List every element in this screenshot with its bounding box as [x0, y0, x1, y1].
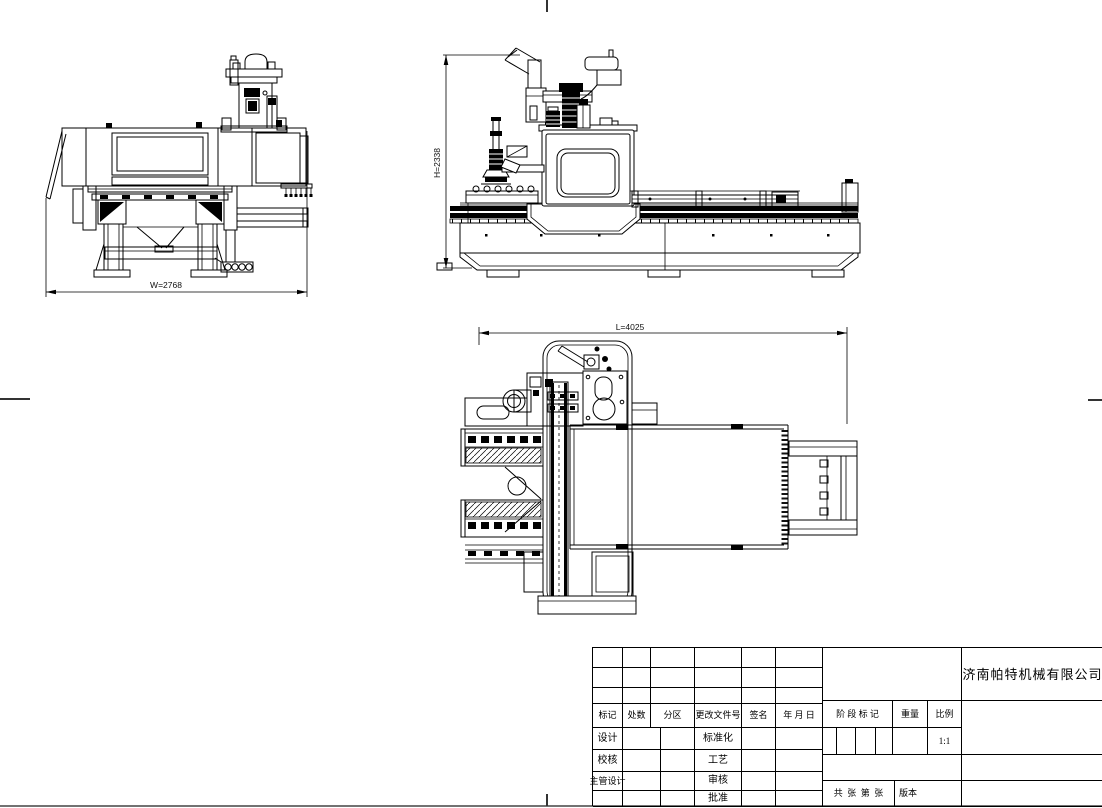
weight-value — [893, 728, 928, 755]
revision-cell — [695, 688, 742, 704]
blank-cell — [661, 750, 695, 772]
row-standardization: 标准化 — [695, 728, 742, 750]
blank-cell — [742, 772, 776, 791]
blank-cell — [661, 728, 695, 750]
blank-cell — [962, 781, 1102, 807]
revision-cell — [623, 668, 651, 688]
front-width-dim: W=2768 — [150, 280, 182, 290]
revision-cell — [651, 688, 695, 704]
blank-cell — [776, 772, 823, 791]
blank-cell — [661, 791, 695, 807]
company-name: 济南帕特机械有限公司 — [962, 648, 1102, 701]
revision-cell — [776, 648, 823, 668]
top-view: L=4025 — [461, 322, 857, 614]
side-view: H=2338 — [432, 48, 860, 277]
col-mark: 标记 — [593, 704, 623, 728]
blank-cell — [623, 772, 661, 791]
blank-cell — [623, 791, 661, 807]
blank-cell — [742, 750, 776, 772]
revision-cell — [695, 668, 742, 688]
blank-cell — [742, 728, 776, 750]
blank-cell — [776, 728, 823, 750]
side-height-dim: H=2338 — [432, 148, 442, 178]
row-review: 审核 — [695, 772, 742, 791]
revision-cell — [742, 668, 776, 688]
blank-cell — [823, 755, 962, 781]
col-zone: 分区 — [651, 704, 695, 728]
version-label: 版本 — [895, 781, 962, 807]
revision-cell — [623, 688, 651, 704]
row-approve: 批准 — [695, 791, 742, 807]
row-chief-design: 主管设计 — [593, 772, 623, 791]
blank-cell — [962, 755, 1102, 781]
revision-cell — [776, 668, 823, 688]
sheets-label: 共 张 第 张 — [823, 781, 895, 807]
stage-mark-label: 阶 段 标 记 — [823, 701, 893, 728]
col-signature: 签名 — [742, 704, 776, 728]
stage-mark-cell — [856, 728, 876, 755]
revision-cell — [623, 648, 651, 668]
blank-cell — [962, 701, 1102, 755]
blank-cell — [823, 648, 962, 701]
revision-cell — [742, 688, 776, 704]
blank-cell — [661, 772, 695, 791]
revision-cell — [695, 648, 742, 668]
stage-mark-cell — [823, 728, 837, 755]
blank-cell — [593, 791, 623, 807]
row-process: 工艺 — [695, 750, 742, 772]
col-date: 年 月 日 — [776, 704, 823, 728]
blank-cell — [776, 791, 823, 807]
blank-cell — [776, 750, 823, 772]
revision-cell — [776, 688, 823, 704]
revision-cell — [651, 648, 695, 668]
row-check: 校核 — [593, 750, 623, 772]
top-length-dim: L=4025 — [616, 322, 645, 332]
col-count: 处数 — [623, 704, 651, 728]
revision-cell — [651, 668, 695, 688]
blank-cell — [742, 791, 776, 807]
stage-mark-cell — [876, 728, 893, 755]
revision-cell — [593, 688, 623, 704]
revision-cell — [593, 648, 623, 668]
scale-label: 比例 — [928, 701, 962, 728]
col-change-file-no: 更改文件号 — [695, 704, 742, 728]
front-view: W=2768 — [46, 54, 313, 297]
revision-cell — [593, 668, 623, 688]
cad-drawing-page: W=2768 — [0, 0, 1102, 808]
scale-value: 1:1 — [928, 728, 962, 755]
blank-cell — [623, 750, 661, 772]
title-block: 标记 处数 分区 更改文件号 签名 年 月 日 设计 标准化 校核 工艺 主管设… — [592, 647, 1102, 806]
revision-cell — [742, 648, 776, 668]
stage-mark-cell — [837, 728, 856, 755]
row-design: 设计 — [593, 728, 623, 750]
blank-cell — [623, 728, 661, 750]
weight-label: 重量 — [893, 701, 928, 728]
